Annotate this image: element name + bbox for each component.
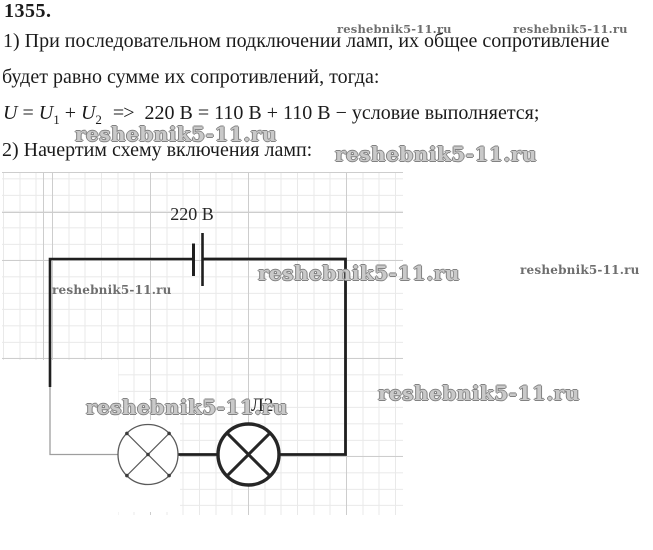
watermark: reshebnik5-11.ru (378, 381, 580, 405)
scan-white-patch (118, 420, 180, 512)
watermark: reshebnik5-11.ru (52, 283, 172, 297)
solution-line-2: будет равно сумме их сопротивлений, тогд… (2, 66, 379, 89)
formula-evaluation: 220 В = 110 В + 110 В − условие выполняе… (144, 102, 539, 124)
formula-equals: = (22, 102, 33, 124)
watermark: reshebnik5-11.ru (520, 263, 640, 277)
formula-u2: U (81, 102, 95, 124)
watermark: reshebnik5-11.ru (86, 395, 288, 419)
formula-u1-subscript: 1 (53, 112, 60, 127)
formula-plus: + (65, 102, 76, 124)
scan-white-patch (0, 360, 118, 515)
voltage-label: 220 В (166, 204, 218, 225)
watermark: reshebnik5-11.ru (337, 22, 452, 36)
formula-u1: U (39, 102, 53, 124)
watermark: reshebnik5-11.ru (75, 122, 277, 146)
formula-u: U (3, 102, 17, 124)
watermark: reshebnik5-11.ru (513, 22, 628, 36)
watermark: reshebnik5-11.ru (335, 142, 537, 166)
watermark: reshebnik5-11.ru (258, 261, 460, 285)
formula-implies: => (113, 102, 134, 124)
problem-number: 1355. (4, 0, 52, 23)
